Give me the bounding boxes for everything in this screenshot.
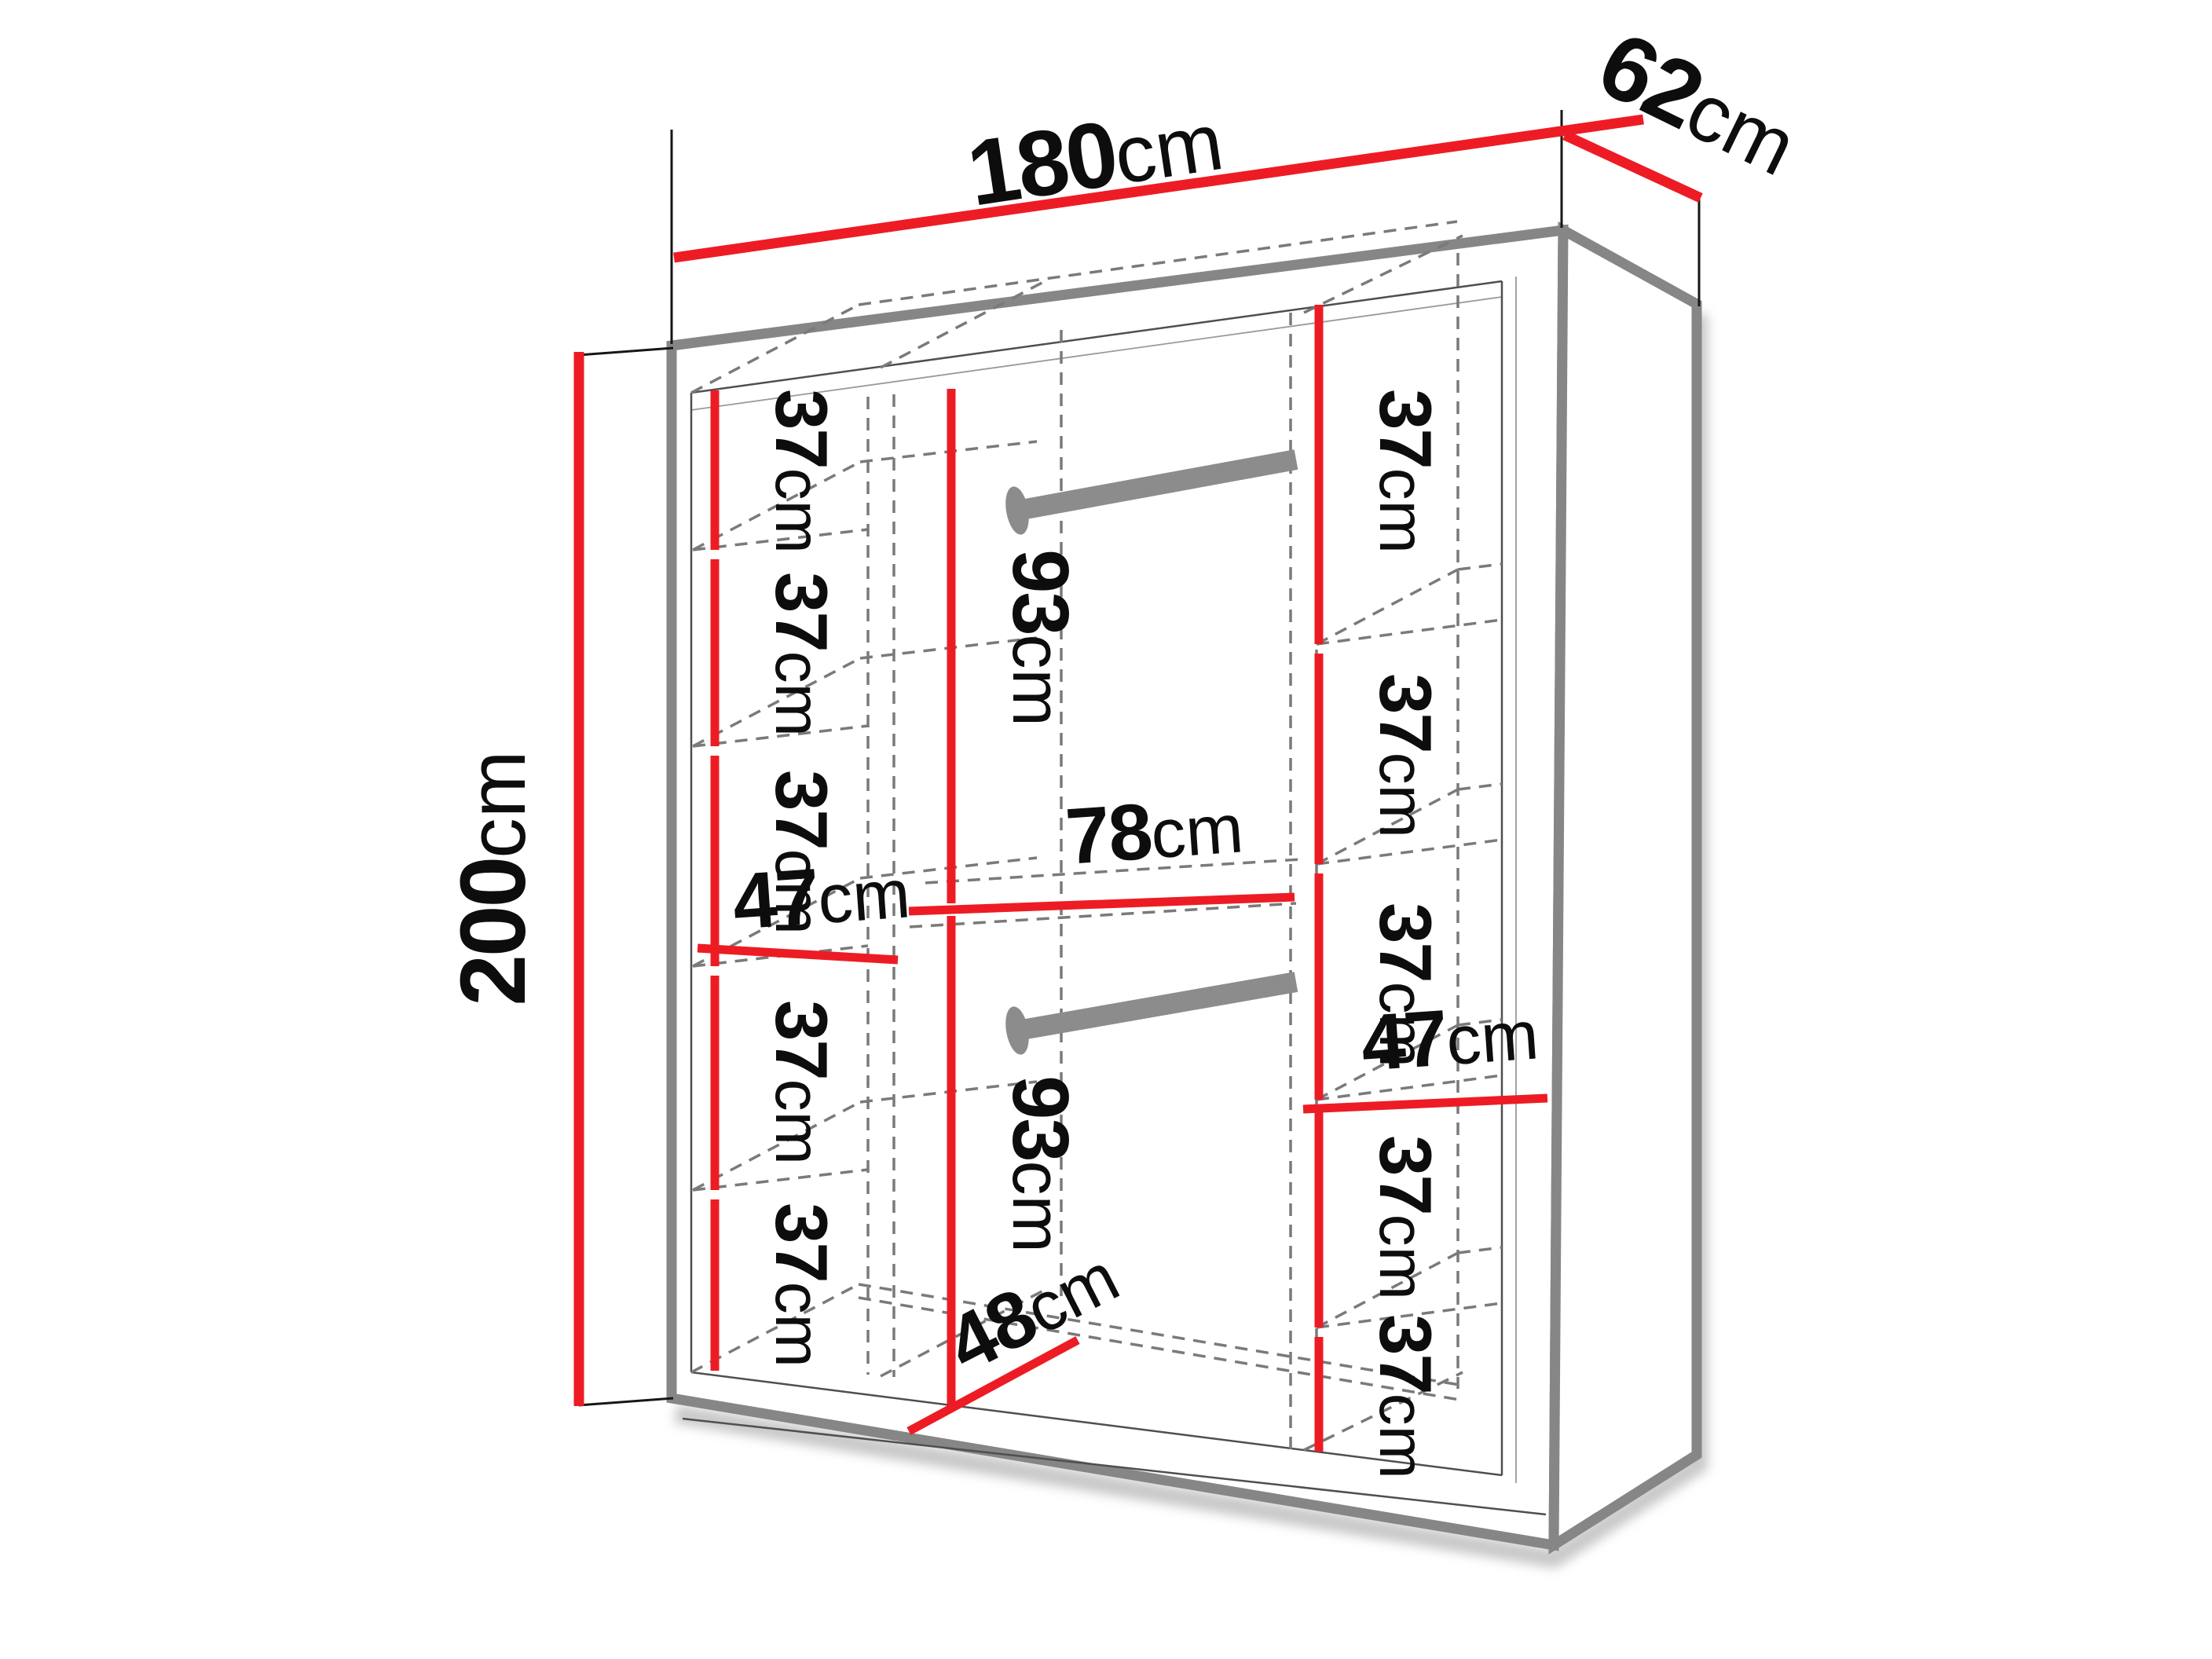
label-right-shelf-gap-2: 37cm — [1364, 673, 1447, 838]
label-left-column-width: 47cm — [730, 846, 913, 946]
wardrobe-dimension-diagram: 180cm 62cm 200cm 37cm 37cm 37cm 37cm 37c… — [0, 0, 2212, 1659]
label-middle-lower-hanging: 93cm — [996, 1075, 1084, 1253]
ext-line-height-bottom — [579, 1398, 673, 1405]
label-overall-width: 180cm — [961, 86, 1229, 226]
label-right-shelf-gap-4: 37cm — [1364, 1135, 1447, 1300]
diagram-canvas: 180cm 62cm 200cm 37cm 37cm 37cm 37cm 37c… — [0, 0, 2212, 1659]
label-right-column-width: 47cm — [1358, 987, 1541, 1087]
label-middle-upper-hanging: 93cm — [996, 549, 1084, 727]
label-overall-height: 200cm — [441, 750, 545, 1005]
label-left-shelf-gap-5: 37cm — [760, 1203, 843, 1368]
label-overall-depth: 62cm — [1584, 12, 1815, 196]
label-left-shelf-gap-1: 37cm — [760, 389, 843, 554]
label-middle-width: 78cm — [1063, 781, 1246, 881]
label-left-shelf-gap-2: 37cm — [760, 572, 843, 737]
label-right-shelf-gap-1: 37cm — [1364, 389, 1447, 554]
cabinet-right-side-panel — [1554, 230, 1697, 1545]
label-right-shelf-gap-5: 37cm — [1364, 1314, 1447, 1479]
label-left-shelf-gap-4: 37cm — [760, 1000, 843, 1165]
ext-line-height-top — [579, 348, 673, 355]
